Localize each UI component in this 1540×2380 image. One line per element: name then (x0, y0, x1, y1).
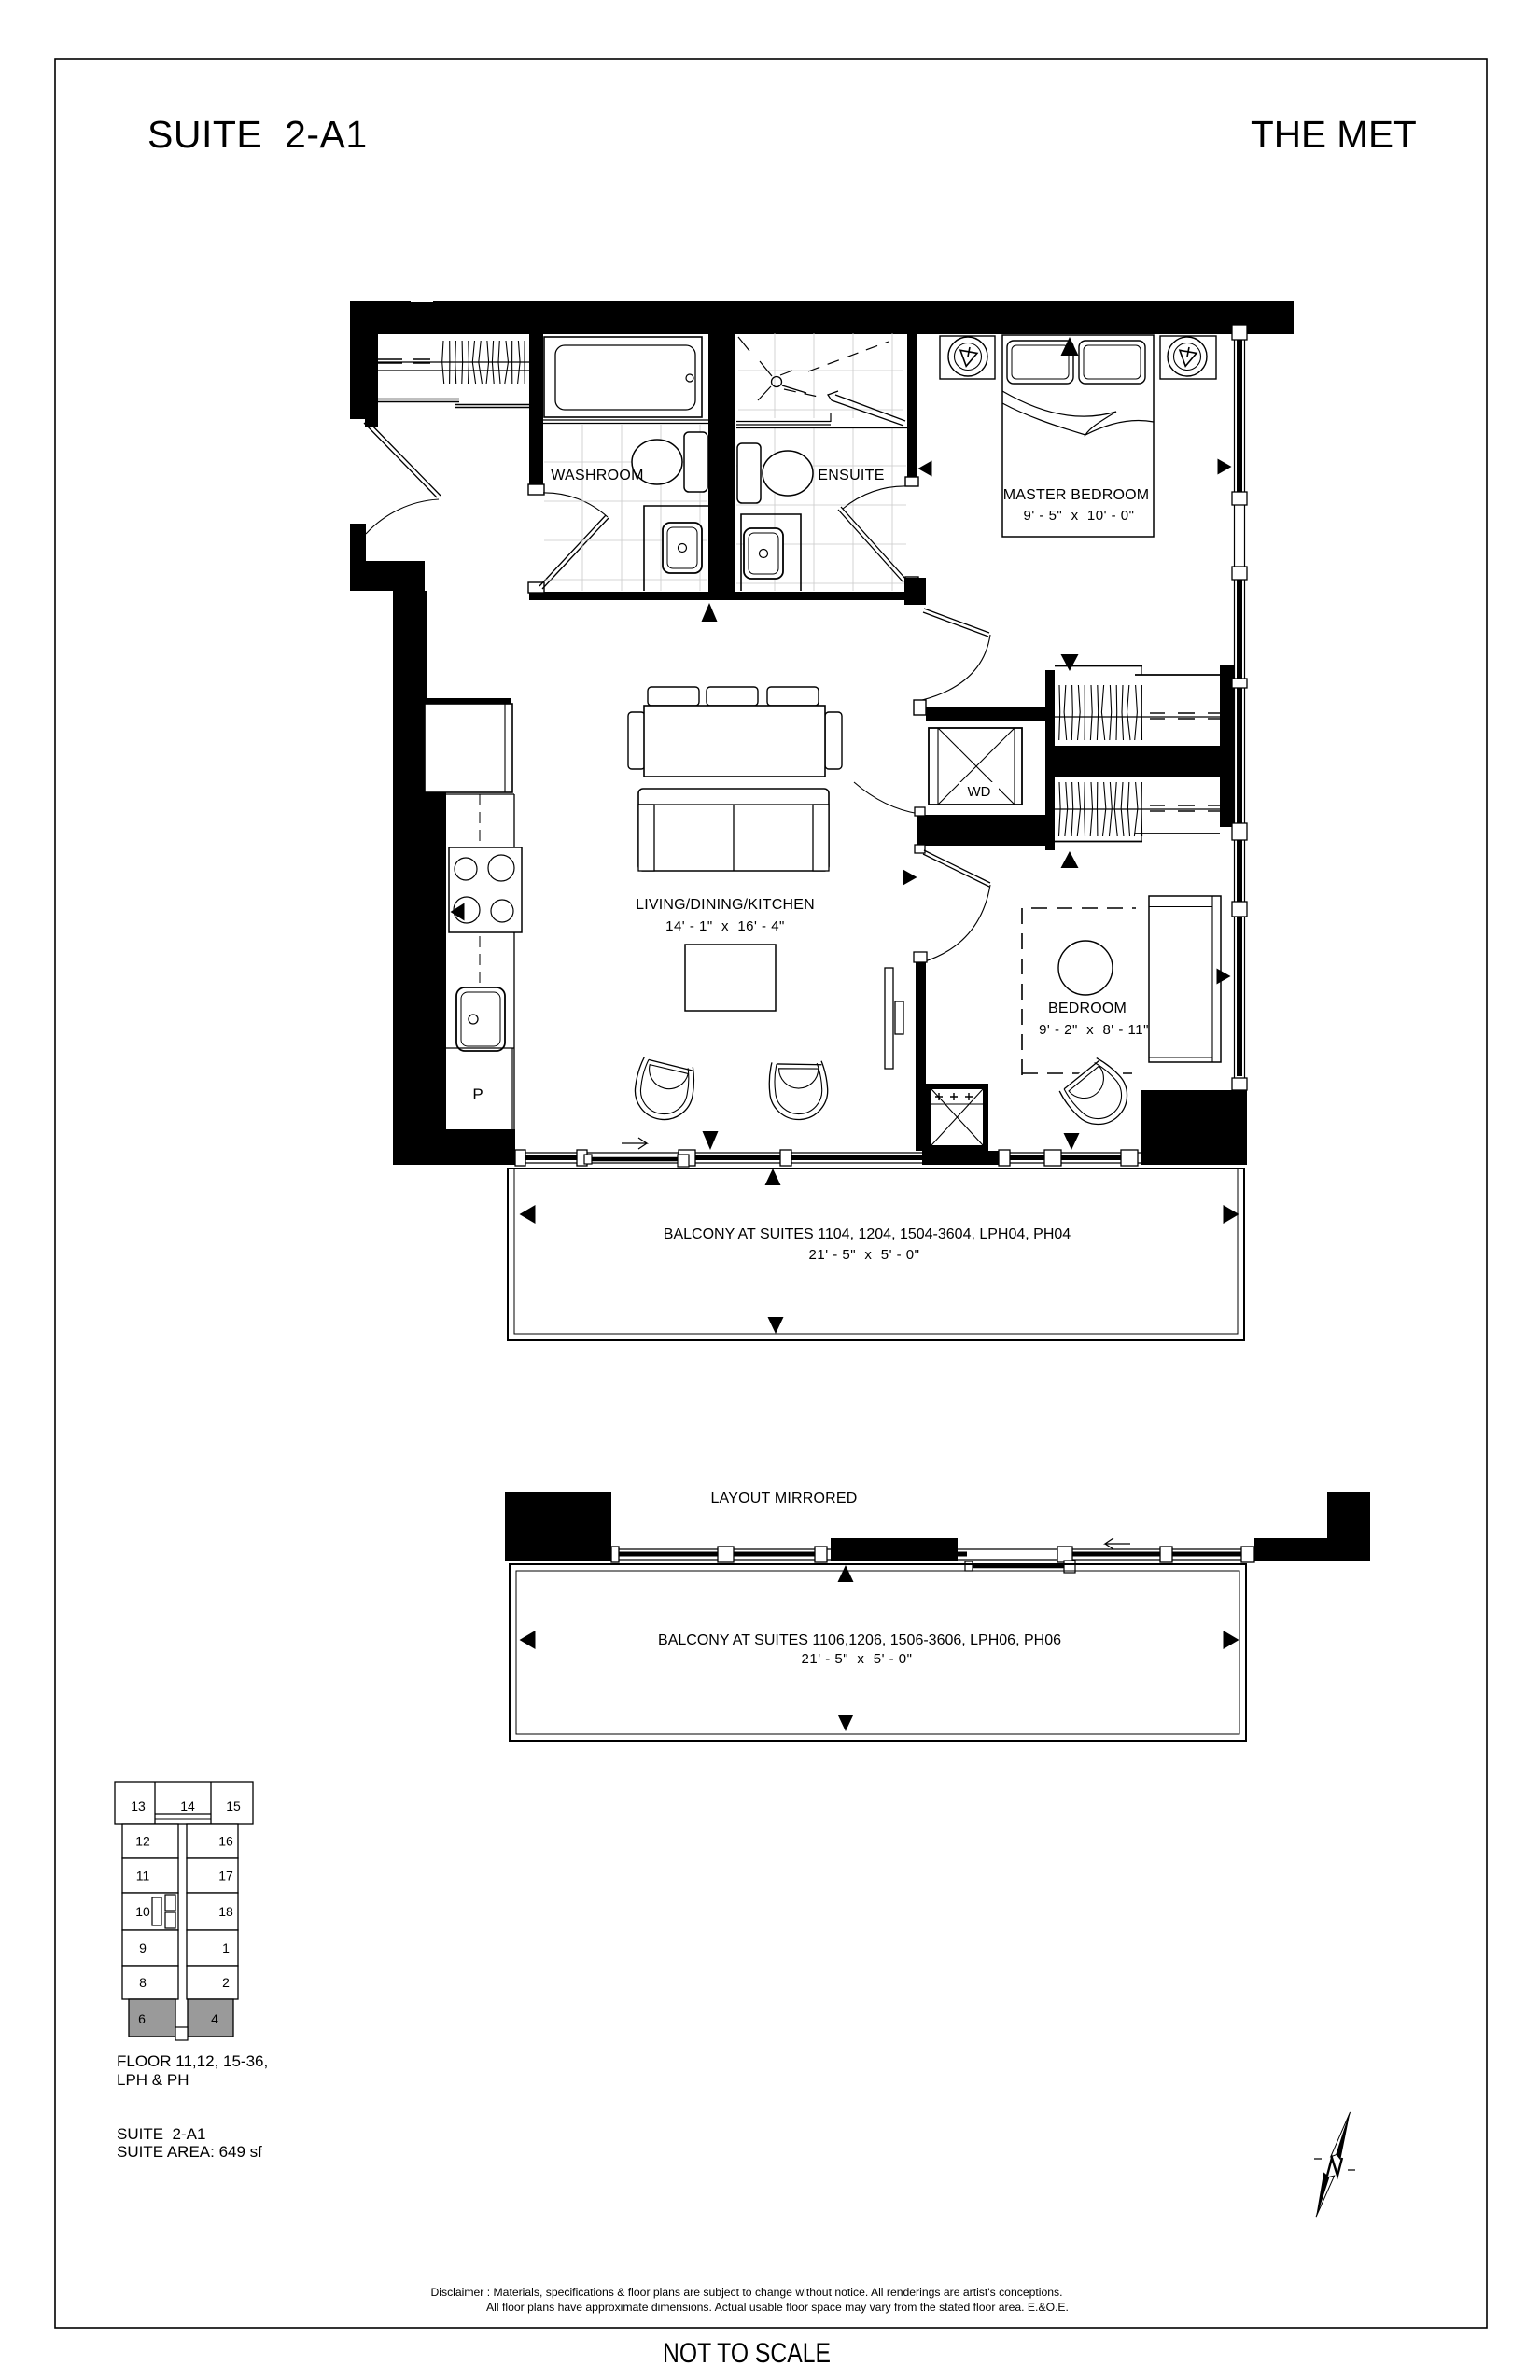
svg-text:BALCONY AT SUITES 1104, 1204,: BALCONY AT SUITES 1104, 1204, 1504-3604,… (664, 1226, 1071, 1242)
svg-text:SUITE AREA: 649 sf: SUITE AREA: 649 sf (117, 2143, 262, 2161)
svg-text:BALCONY AT SUITES 1106,1206, 1: BALCONY AT SUITES 1106,1206, 1506-3606, … (658, 1632, 1061, 1648)
svg-text:11: 11 (136, 1869, 150, 1883)
svg-text:14: 14 (180, 1799, 195, 1813)
svg-text:9' - 2" x 8' - 11": 9' - 2" x 8' - 11" (1039, 1022, 1149, 1038)
svg-text:13: 13 (131, 1799, 146, 1813)
svg-text:FLOOR 11,12, 15-36,: FLOOR 11,12, 15-36, (117, 2052, 268, 2070)
svg-text:21' - 5" x 5' - 0": 21' - 5" x 5' - 0" (809, 1247, 920, 1263)
svg-text:Disclaimer : Materials, specif: Disclaimer : Materials, specifications &… (430, 2286, 1062, 2299)
svg-text:WD: WD (968, 784, 991, 800)
svg-text:All floor plans have approxima: All floor plans have approximate dimensi… (486, 2301, 1069, 2314)
svg-text:4: 4 (211, 2011, 218, 2026)
svg-text:NOT TO SCALE: NOT TO SCALE (663, 2338, 831, 2369)
svg-text:12: 12 (135, 1834, 150, 1849)
svg-text:9' - 5" x 10' - 0": 9' - 5" x 10' - 0" (1024, 508, 1135, 524)
svg-text:17: 17 (218, 1869, 233, 1883)
svg-text:1: 1 (222, 1940, 230, 1955)
svg-text:SUITE 2-A1: SUITE 2-A1 (147, 113, 368, 156)
svg-text:10: 10 (135, 1904, 150, 1919)
svg-text:21' - 5" x 5' - 0": 21' - 5" x 5' - 0" (802, 1651, 913, 1667)
svg-text:ENSUITE: ENSUITE (818, 468, 884, 483)
svg-text:LIVING/DINING/KITCHEN: LIVING/DINING/KITCHEN (636, 897, 815, 913)
svg-text:18: 18 (218, 1904, 233, 1919)
svg-text:15: 15 (226, 1799, 241, 1813)
svg-text:MASTER BEDROOM: MASTER BEDROOM (1003, 487, 1150, 503)
svg-text:LAYOUT MIRRORED: LAYOUT MIRRORED (710, 1491, 857, 1506)
svg-text:THE MET: THE MET (1251, 113, 1417, 156)
svg-text:P: P (472, 1085, 483, 1103)
svg-text:BEDROOM: BEDROOM (1048, 1001, 1127, 1016)
svg-text:LPH & PH: LPH & PH (117, 2071, 189, 2089)
svg-text:SUITE 2-A1: SUITE 2-A1 (117, 2125, 205, 2143)
svg-text:9: 9 (139, 1940, 147, 1955)
svg-text:8: 8 (139, 1975, 147, 1990)
svg-text:2: 2 (222, 1975, 230, 1990)
svg-text:WASHROOM: WASHROOM (551, 468, 644, 483)
svg-text:6: 6 (138, 2011, 146, 2026)
svg-text:16: 16 (218, 1834, 233, 1849)
svg-text:14' - 1" x 16' - 4": 14' - 1" x 16' - 4" (665, 918, 785, 934)
